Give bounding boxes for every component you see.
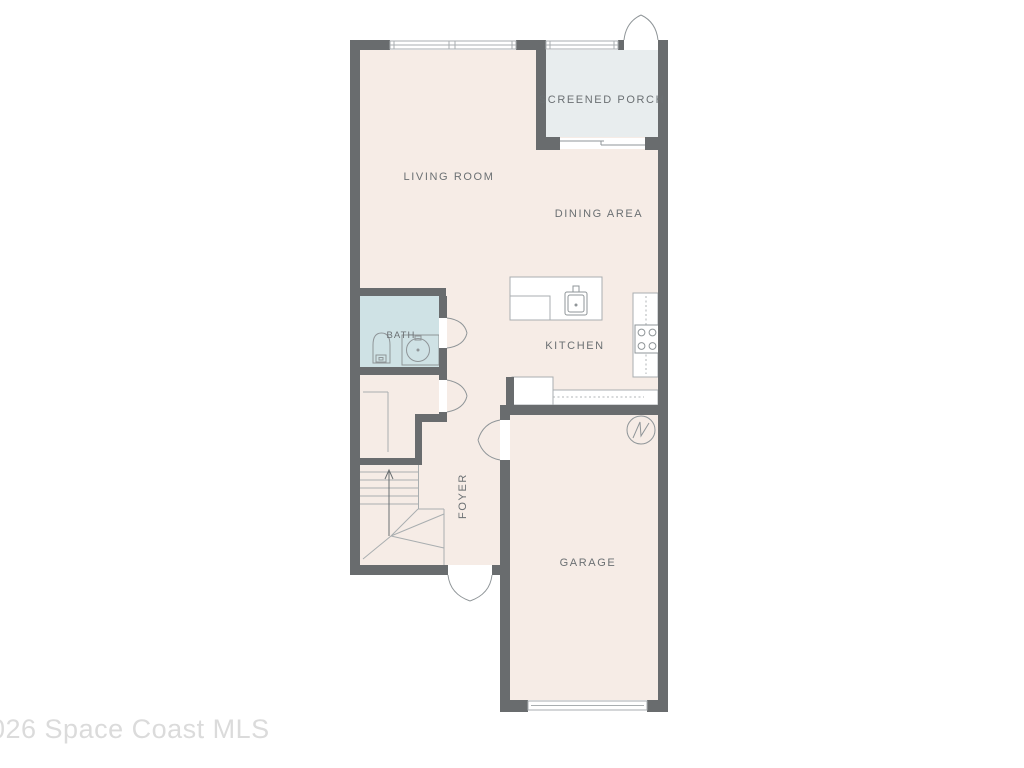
front-door-opening	[448, 565, 492, 575]
wall-segment-garage-left	[500, 460, 510, 700]
wall-segment-kitchen-stub	[506, 377, 514, 405]
stove-icon	[635, 325, 659, 353]
bath-label: BATH	[386, 330, 415, 341]
wall-segment-garage-bottom	[500, 700, 528, 712]
wall-segment-porch-bottom	[645, 137, 668, 150]
screened-porch-label: SCREENED PORCH	[539, 94, 665, 106]
foyer-label: FOYER	[457, 473, 469, 519]
garage-label: GARAGE	[560, 557, 617, 569]
wall-segment-top	[516, 40, 538, 50]
sink-drain-icon	[575, 304, 578, 307]
garage-entry-door-opening	[500, 420, 510, 460]
bath-sink-drain	[417, 349, 420, 352]
wall-segment-top	[350, 40, 390, 50]
wall-segment-left	[350, 40, 360, 575]
closet-door-opening	[439, 380, 447, 412]
porch-door-opening	[624, 40, 658, 50]
wall-segment-bath-bottom	[360, 367, 446, 375]
wall-segment-bath-right	[439, 296, 447, 318]
wall-segment-bath-right	[439, 348, 447, 380]
kitchen-island	[510, 277, 602, 320]
front-door-swing-icon	[448, 575, 492, 601]
floor-plan-page: SCREENED PORCH LIVING ROOM DINING AREA K…	[0, 0, 1024, 768]
kitchen-counter-corner	[512, 377, 553, 405]
wall-segment-stair-head	[360, 458, 421, 465]
mls-watermark: 026 Space Coast MLS	[0, 714, 270, 745]
kitchen-label: KITCHEN	[545, 340, 604, 352]
floor-plan: SCREENED PORCH LIVING ROOM DINING AREA K…	[0, 0, 1024, 768]
wall-segment-garage-top	[500, 405, 668, 415]
sliding-door-opening	[560, 138, 645, 149]
living-room-label: LIVING ROOM	[404, 171, 495, 183]
bath-door-opening	[439, 318, 447, 348]
wall-segment-bath-top	[360, 288, 446, 296]
wall-segment-garage-bottom	[647, 700, 668, 712]
wall-segment-front	[350, 565, 448, 575]
wall-segment-garage-left	[500, 415, 510, 420]
wall-segment-closet	[415, 414, 447, 422]
dining-area-label: DINING AREA	[555, 208, 644, 220]
porch-door-swing-icon	[624, 15, 658, 40]
wall-segment-porch-bottom	[536, 137, 560, 150]
